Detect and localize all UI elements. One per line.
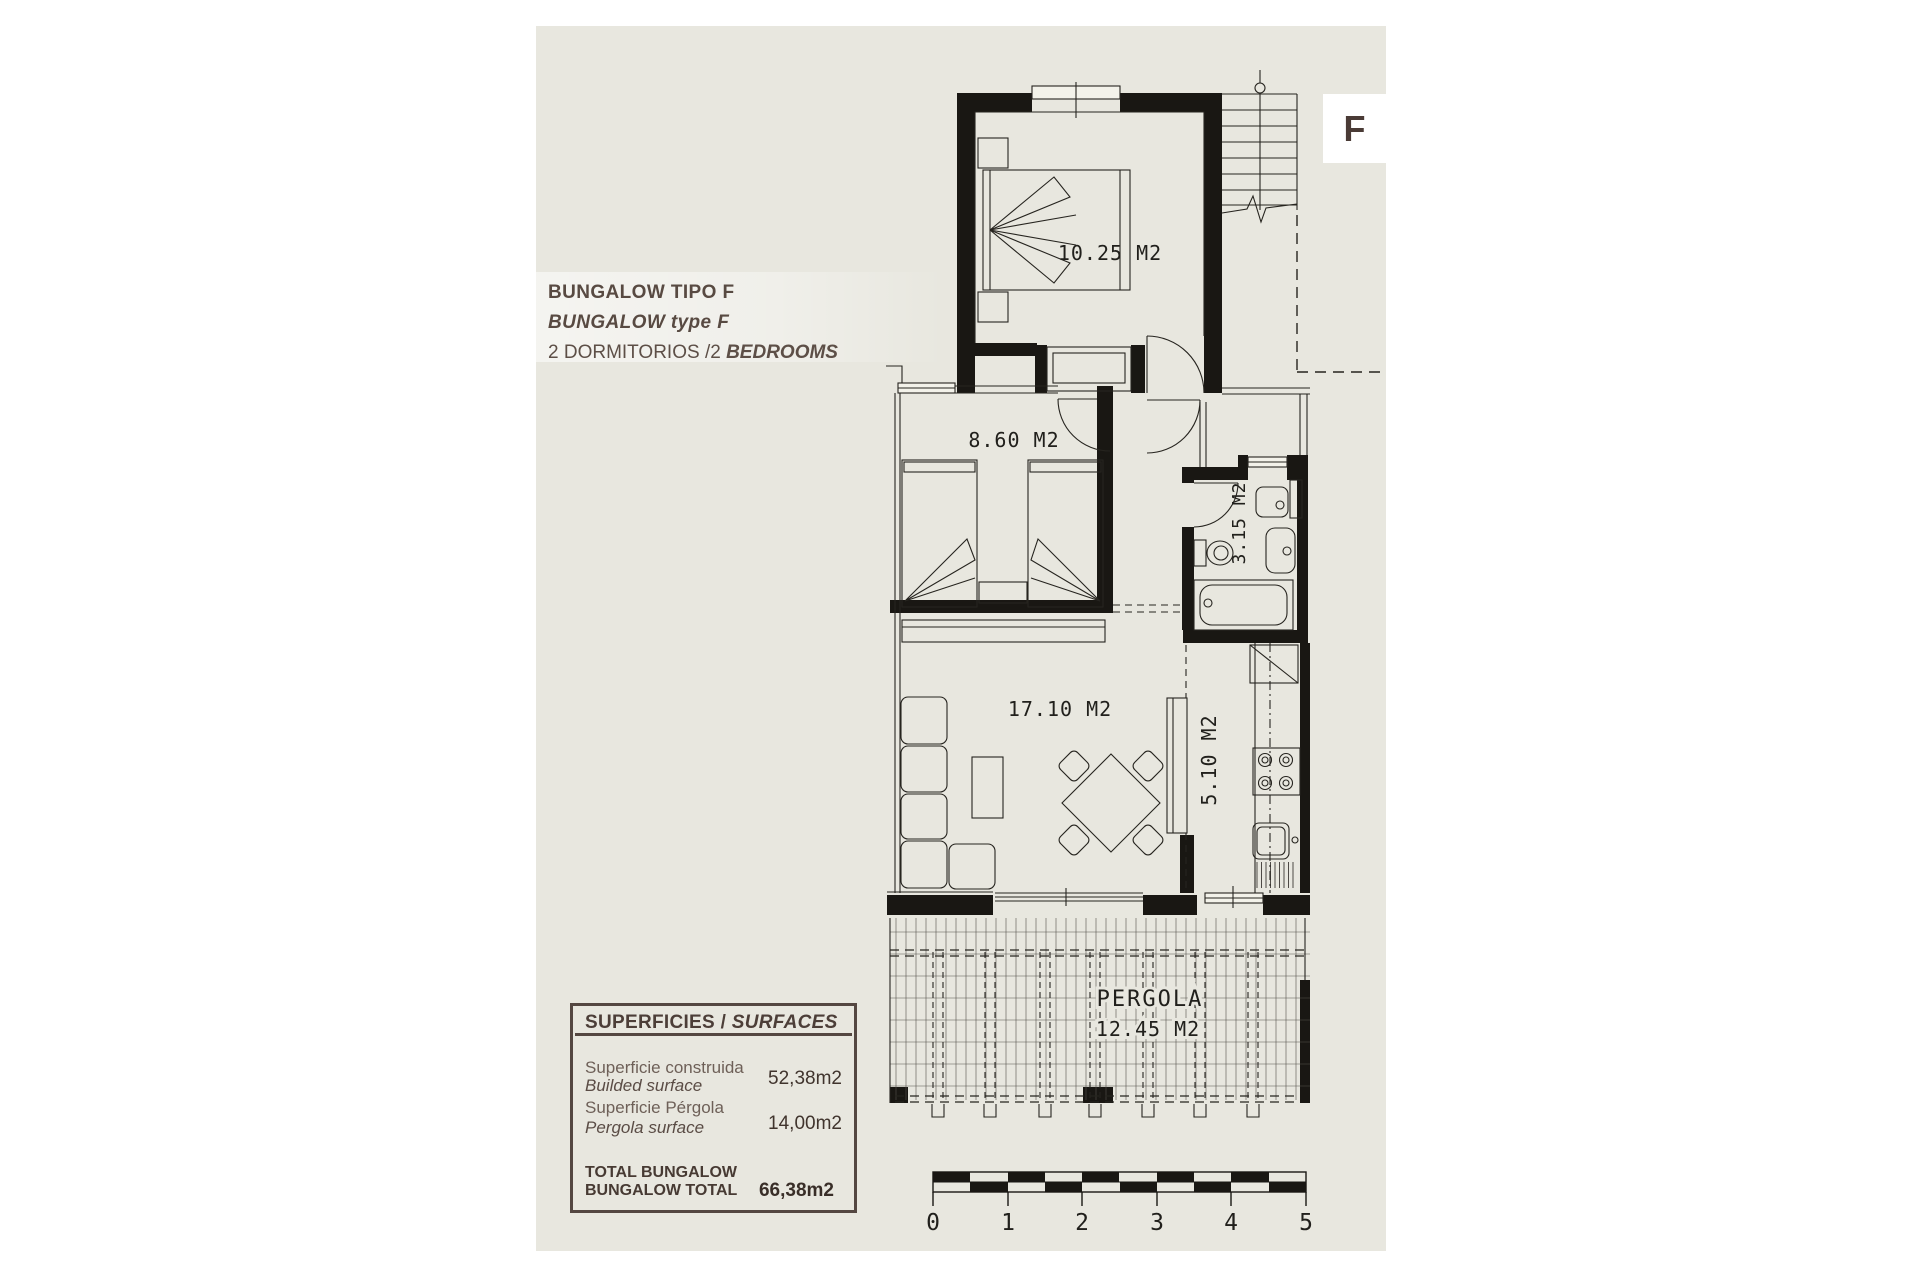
total-label-en: BUNGALOW TOTAL [585,1182,737,1200]
double-bed [983,170,1130,290]
pergola-surface-label-es: Superficie Pérgola [585,1098,724,1118]
nightstand [978,292,1008,322]
dining-set [1057,749,1165,857]
surfaces-header-es: SUPERFICIES / [585,1012,732,1033]
scale-tick-3: 3 [1150,1210,1164,1236]
coffee-table [972,757,1003,818]
toilet [1194,540,1233,566]
scale-tick-5: 5 [1299,1210,1313,1236]
single-bed [902,460,977,607]
label-bedroom-second: 8.60 M2 [968,428,1059,452]
scale-tick-4: 4 [1224,1210,1238,1236]
built-surface-label-es: Superficie construida [585,1058,744,1078]
dashed-boundary [1297,215,1382,372]
stairs [1222,70,1297,222]
scale-tick-2: 2 [1075,1210,1089,1236]
total-label-es: TOTAL BUNGALOW [585,1164,737,1182]
nightstand [979,582,1027,603]
exterior-wall-lines [1222,388,1310,455]
surfaces-header-en: SURFACES [732,1012,838,1033]
stair-pole [1255,83,1265,93]
entrance-door-arc [1147,400,1200,453]
built-surface-value: 52,38m2 [768,1068,842,1090]
kitchen [1250,643,1300,893]
label-pergola-area: 12.45 M2 [1096,1017,1200,1041]
kitchen-sink [1253,823,1298,859]
sofa [901,697,995,889]
surfaces-header-rule [575,1033,852,1036]
door-main-bedroom [1147,336,1204,393]
label-bedroom-main: 10.25 M2 [1058,241,1162,265]
label-pergola-name: PERGOLA [1097,987,1204,1012]
nightstand [978,138,1008,168]
scale-tick-0: 0 [926,1210,940,1236]
single-bed [1028,460,1103,607]
drainboard-hatch [1257,862,1293,888]
stove [1253,748,1300,795]
fridge [1250,645,1298,683]
washbasin [1256,480,1302,518]
bathtub [1194,580,1293,630]
label-living: 17.10 M2 [1008,697,1112,721]
pergola-surface-value: 14,00m2 [768,1113,842,1135]
closet [1047,347,1131,391]
label-kitchen: 5.10 M2 [1197,714,1221,805]
kitchen-peninsula [1167,698,1187,833]
scale-tick-1: 1 [1001,1210,1015,1236]
wardrobe-shelf [902,620,1105,642]
sliding-door [995,888,1143,906]
surfaces-header: SUPERFICIES / SURFACES [585,1012,838,1034]
plan-sheet: BUNGALOW TIPO F BUNGALOW type F 2 DORMIT… [536,26,1386,1251]
scale-bar: 0 1 2 3 4 5 [926,1172,1313,1236]
pergola-surface-label-en: Pergola surface [585,1118,704,1138]
total-value: 66,38m2 [759,1180,834,1202]
surfaces-table: SUPERFICIES / SURFACES Superficie constr… [570,1003,857,1213]
bidet [1266,528,1295,573]
built-surface-label-en: Builded surface [585,1076,702,1096]
label-bathroom: 3.15 M2 [1229,482,1250,565]
